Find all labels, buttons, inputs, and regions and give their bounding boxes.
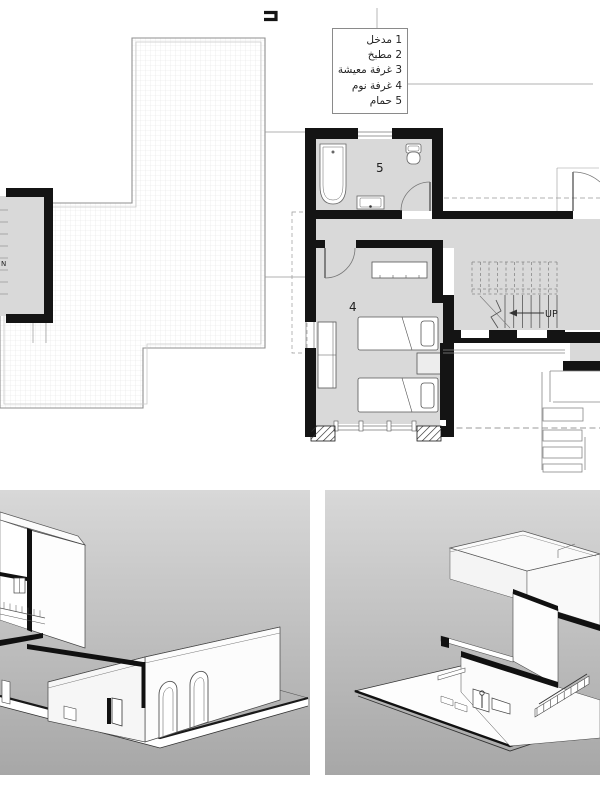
step (543, 408, 583, 421)
axonometric-view-left (0, 490, 310, 775)
cut-wall-band (441, 636, 449, 648)
legend-item: 4 غرفة نوم (335, 79, 402, 94)
cut-jamb (107, 698, 111, 724)
legend-item: 2 مطبخ (335, 48, 402, 63)
cut-floor-band (0, 633, 43, 646)
left-room: N (0, 188, 53, 343)
arched-window (159, 681, 177, 738)
ledge-lines (443, 350, 565, 353)
axonometric-left-drawing (0, 490, 310, 775)
toilet-bowl (407, 152, 420, 164)
axonometric-right-drawing (325, 490, 600, 775)
axonometric-view-right (325, 490, 600, 775)
hatched-pier (311, 426, 335, 441)
two-story-block (0, 512, 85, 704)
wall-notch (461, 330, 489, 338)
bathroom-number-label: 5 (376, 161, 384, 175)
door-frame (557, 168, 599, 211)
arched-window (190, 671, 208, 728)
step (543, 430, 582, 441)
projection-dashed-box (292, 212, 307, 353)
pillow (421, 321, 434, 346)
cut-wall-band (142, 662, 146, 708)
nightstand (417, 353, 442, 374)
first-floor-plan: N (0, 0, 600, 480)
legend-item: 5 حمام (335, 94, 402, 109)
step (543, 447, 582, 458)
sink-drain (369, 205, 372, 208)
side-door (112, 698, 122, 726)
step (543, 464, 582, 472)
wall-notch (440, 420, 446, 426)
hatched-pier (417, 426, 441, 441)
bathtub-drain (332, 151, 335, 154)
legend-box: 1 مدخل 2 مطبخ 3 غرفة معيشة 4 غرفة نوم 5 … (332, 28, 408, 114)
cut-wall-band (27, 528, 32, 632)
north-mark-icon (264, 13, 276, 20)
stair-direction-label: UP (545, 309, 558, 320)
side-sliver-floor (570, 343, 600, 361)
left-room-label: N (1, 260, 6, 268)
hall-door-swing (573, 172, 600, 182)
wall-notch (517, 330, 547, 338)
legend-item: 1 مدخل (335, 33, 402, 48)
legend-item: 3 غرفة معيشة (335, 63, 402, 78)
pillow (421, 383, 434, 408)
bedroom-number-label: 4 (349, 300, 357, 314)
architectural-sheet: N (0, 0, 600, 800)
